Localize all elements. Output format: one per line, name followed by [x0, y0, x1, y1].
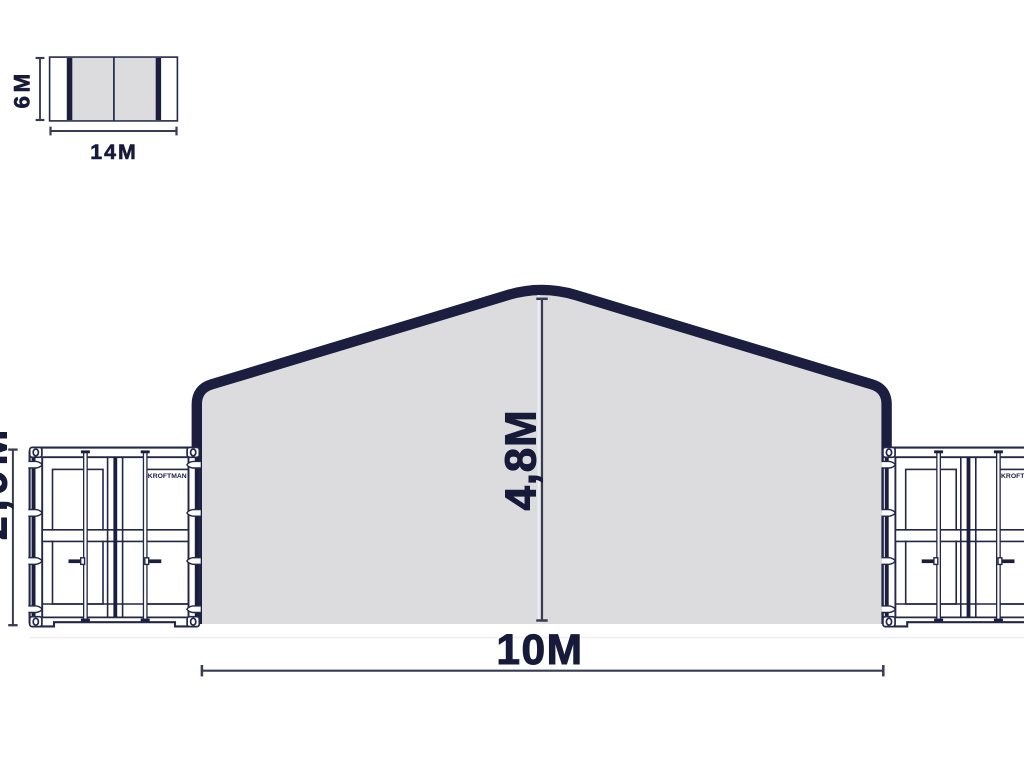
svg-text:6M: 6M	[9, 70, 34, 108]
svg-text:10M: 10M	[496, 627, 583, 674]
svg-text:14M: 14M	[90, 140, 137, 164]
svg-text:4,8M: 4,8M	[497, 409, 546, 510]
svg-text:2,9M: 2,9M	[0, 425, 17, 541]
